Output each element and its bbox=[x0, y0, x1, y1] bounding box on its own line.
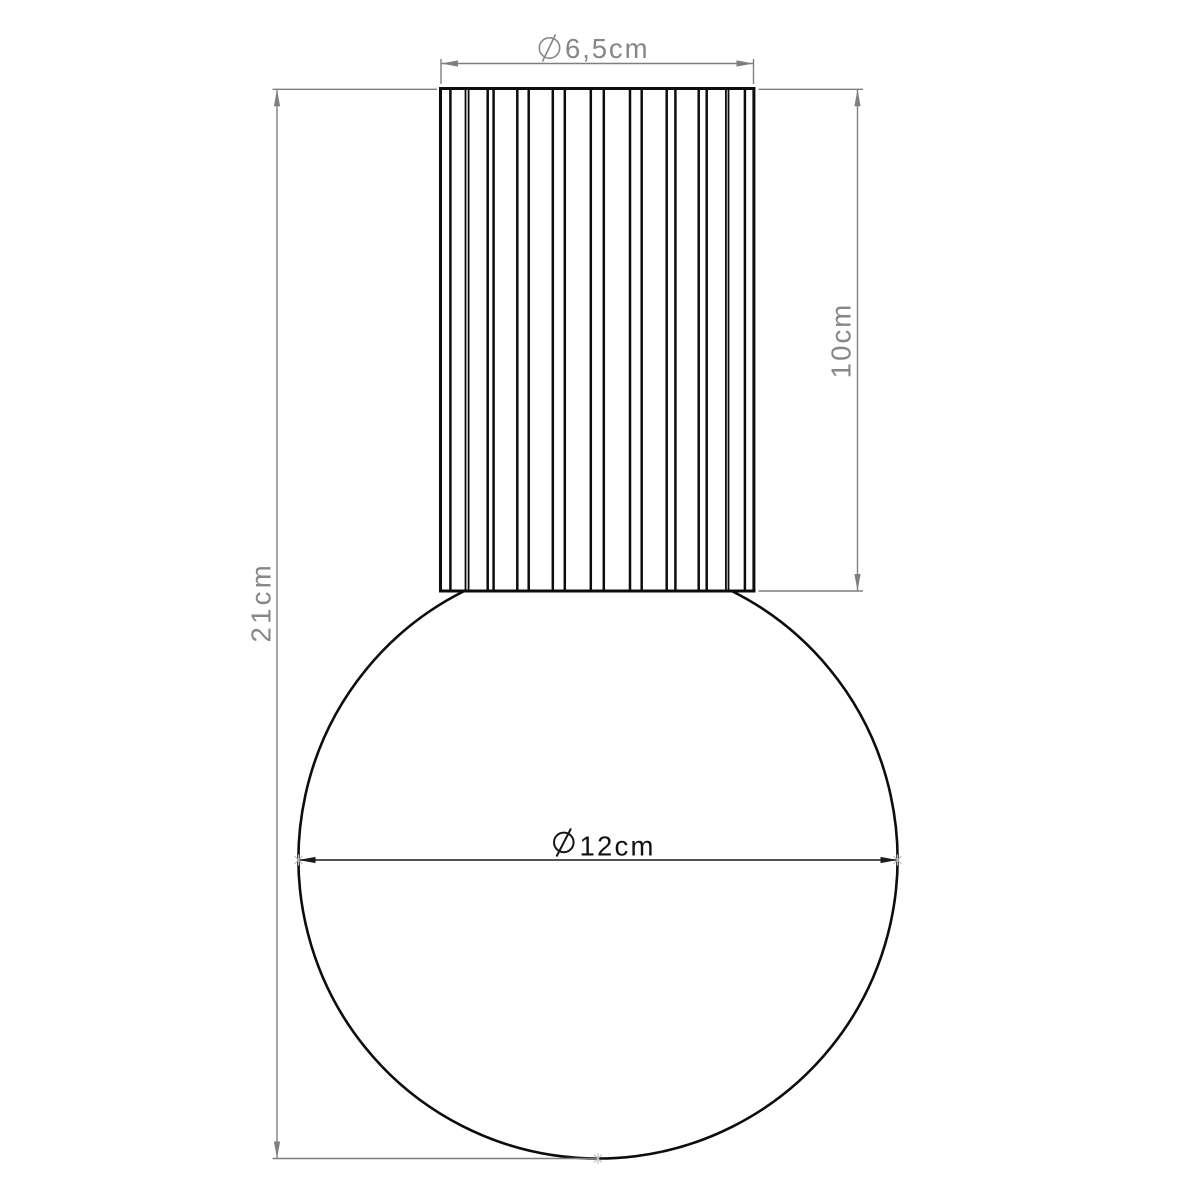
svg-text:12cm: 12cm bbox=[580, 831, 656, 862]
svg-text:10cm: 10cm bbox=[826, 303, 857, 379]
svg-text:6,5cm: 6,5cm bbox=[565, 33, 649, 64]
svg-text:21cm: 21cm bbox=[246, 562, 277, 642]
